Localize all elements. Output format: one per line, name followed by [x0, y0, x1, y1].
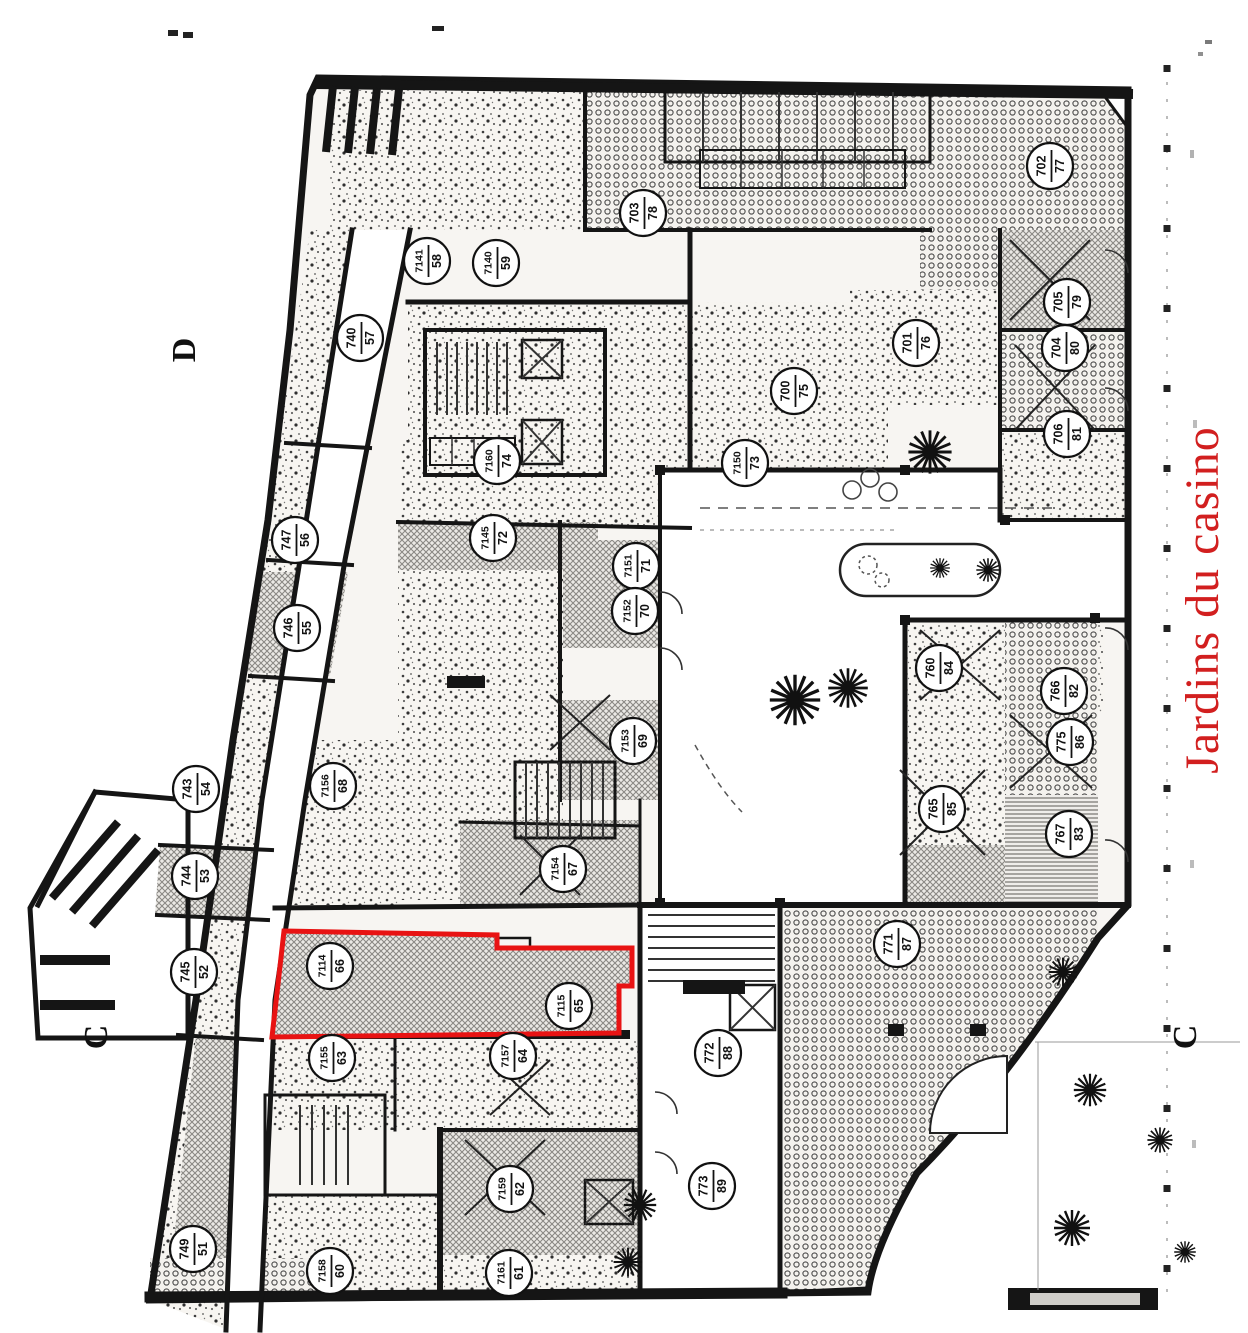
unit-label: 70378 — [620, 190, 666, 236]
svg-text:740: 740 — [345, 328, 359, 349]
svg-text:63: 63 — [335, 1051, 349, 1065]
unit-label: 716074 — [474, 438, 520, 484]
svg-text:7151: 7151 — [623, 554, 635, 578]
svg-text:79: 79 — [1070, 295, 1084, 309]
svg-text:700: 700 — [779, 381, 793, 402]
svg-text:7115: 7115 — [556, 994, 568, 1017]
unit-label: 70176 — [893, 320, 939, 366]
svg-text:66: 66 — [333, 959, 347, 973]
svg-text:54: 54 — [199, 782, 213, 796]
svg-text:70: 70 — [638, 604, 652, 618]
svg-text:64: 64 — [516, 1049, 530, 1063]
svg-text:60: 60 — [333, 1264, 347, 1278]
svg-text:89: 89 — [715, 1179, 729, 1193]
unit-label: 76084 — [916, 645, 962, 691]
svg-text:706: 706 — [1052, 424, 1066, 445]
svg-text:7158: 7158 — [317, 1259, 329, 1283]
unit-label: 715073 — [722, 440, 768, 486]
svg-text:773: 773 — [697, 1176, 711, 1197]
svg-text:78: 78 — [646, 206, 660, 220]
svg-text:743: 743 — [181, 779, 195, 800]
svg-text:55: 55 — [300, 621, 314, 635]
unit-label: 715860 — [307, 1248, 353, 1294]
jardins-du-casino-label: Jardins du casino — [1176, 426, 1229, 774]
unit-label: 76783 — [1046, 811, 1092, 857]
floor-plan-drawing: 7405771415871405974756746557435474453745… — [0, 0, 1248, 1333]
svg-text:7141: 7141 — [414, 249, 426, 273]
svg-text:771: 771 — [882, 934, 896, 955]
pond — [840, 544, 1000, 596]
unit-label: 70579 — [1044, 279, 1090, 325]
svg-text:67: 67 — [566, 862, 580, 876]
svg-text:76: 76 — [919, 336, 933, 350]
svg-text:68: 68 — [336, 779, 350, 793]
svg-text:745: 745 — [179, 962, 193, 983]
svg-text:7153: 7153 — [620, 729, 632, 753]
unit-label: 715563 — [309, 1035, 355, 1081]
unit-label: 70277 — [1027, 143, 1073, 189]
svg-text:701: 701 — [901, 333, 915, 354]
unit-label: 70075 — [771, 368, 817, 414]
svg-text:57: 57 — [363, 331, 377, 345]
unit-label: 77288 — [695, 1030, 741, 1076]
unit-label: 74655 — [274, 605, 320, 651]
unit-label: 715962 — [487, 1166, 533, 1212]
unit-label: 74057 — [337, 315, 383, 361]
svg-text:7114: 7114 — [317, 954, 329, 977]
svg-text:52: 52 — [197, 965, 211, 979]
unit-label: 715270 — [612, 588, 658, 634]
svg-text:84: 84 — [942, 661, 956, 675]
unit-label: 74951 — [170, 1226, 216, 1272]
unit-label: 715171 — [613, 543, 659, 589]
svg-text:765: 765 — [927, 799, 941, 820]
svg-text:744: 744 — [180, 866, 194, 887]
unit-label: 715467 — [540, 846, 586, 892]
svg-text:71: 71 — [639, 559, 653, 573]
svg-text:7161: 7161 — [496, 1261, 508, 1285]
svg-text:772: 772 — [703, 1043, 717, 1064]
grid-letter-d: D — [166, 338, 203, 363]
unit-label: 76585 — [919, 786, 965, 832]
svg-text:81: 81 — [1070, 427, 1084, 441]
svg-text:7152: 7152 — [622, 599, 634, 623]
unit-label: 711466 — [307, 943, 353, 989]
svg-text:51: 51 — [196, 1242, 210, 1256]
svg-text:760: 760 — [924, 658, 938, 679]
svg-text:65: 65 — [572, 999, 586, 1013]
unit-label: 70480 — [1042, 325, 1088, 371]
svg-text:75: 75 — [797, 384, 811, 398]
svg-text:7145: 7145 — [480, 526, 492, 550]
svg-text:7150: 7150 — [732, 451, 744, 475]
svg-text:73: 73 — [748, 456, 762, 470]
atrium — [640, 905, 780, 1292]
svg-text:87: 87 — [900, 937, 914, 951]
svg-text:88: 88 — [721, 1046, 735, 1060]
svg-text:62: 62 — [513, 1182, 527, 1196]
unit-label: 714572 — [470, 515, 516, 561]
unit-label: 715668 — [310, 763, 356, 809]
unit-label: 74453 — [172, 853, 218, 899]
svg-text:61: 61 — [512, 1266, 526, 1280]
svg-text:80: 80 — [1068, 341, 1082, 355]
svg-text:766: 766 — [1049, 681, 1063, 702]
svg-text:82: 82 — [1067, 684, 1081, 698]
svg-text:746: 746 — [282, 618, 296, 639]
svg-text:85: 85 — [945, 802, 959, 816]
svg-text:83: 83 — [1072, 827, 1086, 841]
svg-text:7157: 7157 — [500, 1044, 512, 1068]
unit-label: 716161 — [486, 1250, 532, 1296]
svg-text:702: 702 — [1035, 156, 1049, 177]
svg-text:749: 749 — [178, 1239, 192, 1260]
unit-label: 714059 — [473, 240, 519, 286]
svg-text:59: 59 — [499, 256, 513, 270]
unit-label: 74552 — [171, 949, 217, 995]
svg-text:69: 69 — [636, 734, 650, 748]
svg-text:86: 86 — [1073, 735, 1087, 749]
unit-label: 77586 — [1047, 719, 1093, 765]
unit-label: 74354 — [173, 766, 219, 812]
svg-text:767: 767 — [1054, 824, 1068, 845]
grid-letter-c-right: C — [1167, 1025, 1204, 1050]
svg-text:56: 56 — [298, 533, 312, 547]
svg-text:7140: 7140 — [483, 251, 495, 275]
svg-text:58: 58 — [430, 254, 444, 268]
svg-text:72: 72 — [496, 531, 510, 545]
svg-text:703: 703 — [628, 203, 642, 224]
svg-text:53: 53 — [198, 869, 212, 883]
unit-label: 715369 — [610, 718, 656, 764]
unit-label: 70681 — [1044, 411, 1090, 457]
svg-text:74: 74 — [500, 454, 514, 468]
svg-text:7155: 7155 — [319, 1046, 331, 1070]
unit-label: 77389 — [689, 1163, 735, 1209]
unit-label: 715764 — [490, 1033, 536, 1079]
floor-plan-page: 7405771415871405974756746557435474453745… — [0, 0, 1248, 1333]
svg-text:705: 705 — [1052, 292, 1066, 313]
svg-text:7156: 7156 — [320, 774, 332, 798]
unit-label: 76682 — [1041, 668, 1087, 714]
unit-label: 74756 — [272, 517, 318, 563]
svg-text:7154: 7154 — [550, 857, 562, 881]
svg-text:7159: 7159 — [497, 1177, 509, 1201]
svg-text:7160: 7160 — [484, 449, 496, 473]
unit-label: 714158 — [404, 238, 450, 284]
grid-letter-c-left: C — [78, 1025, 115, 1050]
unit-label: 77187 — [874, 921, 920, 967]
svg-text:77: 77 — [1053, 159, 1067, 173]
svg-text:775: 775 — [1055, 732, 1069, 753]
svg-text:747: 747 — [280, 530, 294, 551]
svg-text:704: 704 — [1050, 338, 1064, 359]
unit-label: 711565 — [546, 983, 592, 1029]
